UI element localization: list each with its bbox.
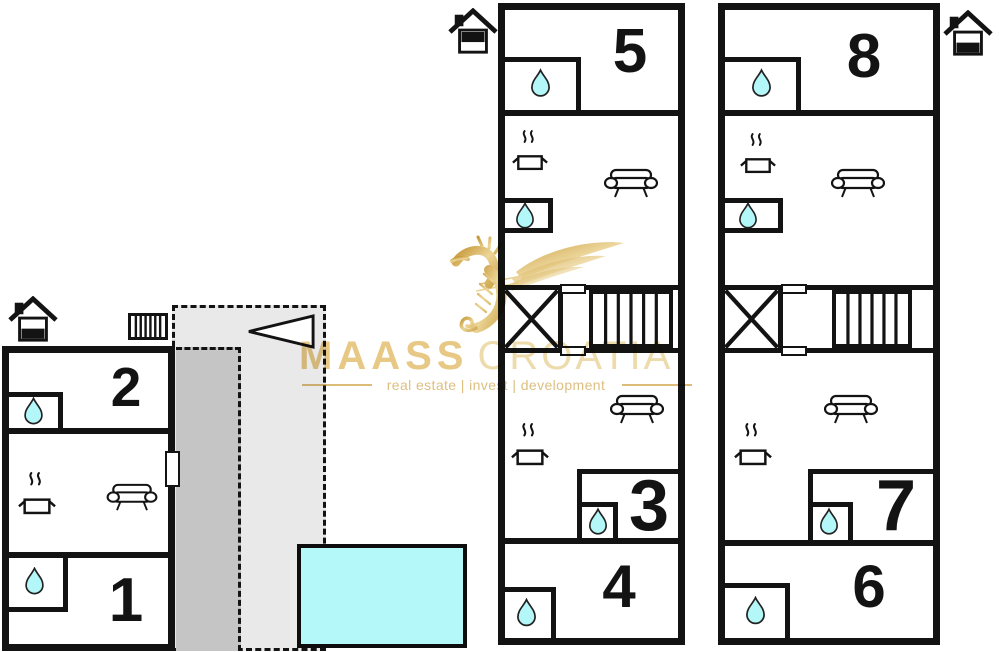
- wall: [725, 348, 933, 353]
- floor-plan-canvas: 2 1 5 3 4: [0, 0, 999, 652]
- room-label-3: 3: [619, 470, 679, 542]
- swimming-pool: [297, 544, 467, 648]
- room-label-4: 4: [589, 557, 649, 617]
- door: [165, 451, 180, 487]
- room-label-7: 7: [866, 470, 926, 542]
- room-label-2: 2: [96, 360, 156, 415]
- door: [560, 284, 586, 294]
- wall: [9, 428, 168, 434]
- building-left: 2 1: [2, 346, 175, 651]
- house-icon: [448, 8, 498, 56]
- stove-icon: [734, 422, 772, 466]
- shower-icon: [23, 397, 44, 425]
- building-right: 8 7 6: [718, 3, 940, 645]
- sofa-icon: [824, 394, 878, 426]
- stairs-icon: [589, 290, 673, 348]
- building-middle: 5 3 4: [498, 3, 685, 645]
- stairs-icon: [832, 290, 912, 348]
- sofa-icon: [106, 483, 158, 513]
- shower-icon: [745, 596, 766, 625]
- room-label-8: 8: [834, 26, 894, 88]
- shower-icon: [530, 68, 551, 98]
- stove-icon: [18, 471, 56, 515]
- door: [781, 346, 807, 356]
- wall: [505, 538, 678, 544]
- shower-icon: [819, 507, 839, 536]
- stove-icon: [740, 131, 776, 175]
- house-icon: [8, 296, 58, 344]
- door: [781, 284, 807, 294]
- terrace-walkway: [176, 347, 241, 651]
- sofa-icon: [604, 168, 658, 200]
- room-label-5: 5: [600, 21, 660, 83]
- shower-icon: [24, 567, 45, 595]
- shower-icon: [738, 202, 758, 229]
- house-icon: [943, 10, 993, 58]
- wall: [725, 540, 933, 546]
- room-label-1: 1: [96, 570, 156, 632]
- room-label-6: 6: [839, 557, 899, 617]
- shower-icon: [516, 598, 537, 627]
- stairwell-shaft: [725, 290, 783, 348]
- x-cross-icon: [725, 290, 778, 348]
- shower-icon: [751, 68, 772, 98]
- shower-icon: [515, 202, 535, 229]
- wall: [505, 110, 678, 116]
- stove-icon: [511, 422, 549, 466]
- stairwell-shaft: [505, 290, 563, 348]
- direction-arrow-icon: [246, 314, 316, 349]
- shower-icon: [588, 507, 608, 536]
- x-cross-icon: [505, 290, 558, 348]
- wall: [505, 348, 678, 353]
- radiator-icon: [128, 313, 168, 340]
- door: [560, 346, 586, 356]
- wall: [725, 110, 933, 116]
- sofa-icon: [831, 168, 885, 200]
- sofa-icon: [610, 394, 664, 426]
- stove-icon: [512, 128, 548, 172]
